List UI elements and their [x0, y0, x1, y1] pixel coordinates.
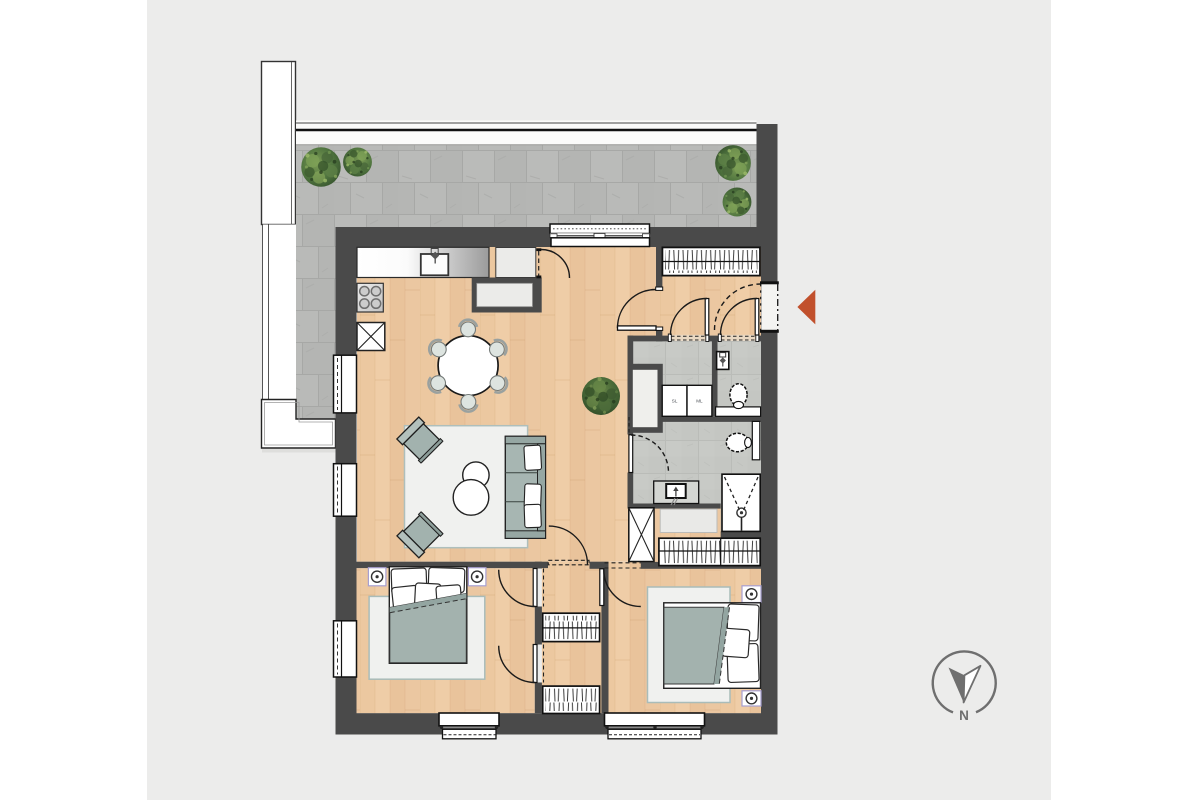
svg-text:ML: ML: [696, 399, 703, 404]
svg-text:SL: SL: [672, 399, 678, 404]
svg-text:N: N: [959, 708, 969, 723]
